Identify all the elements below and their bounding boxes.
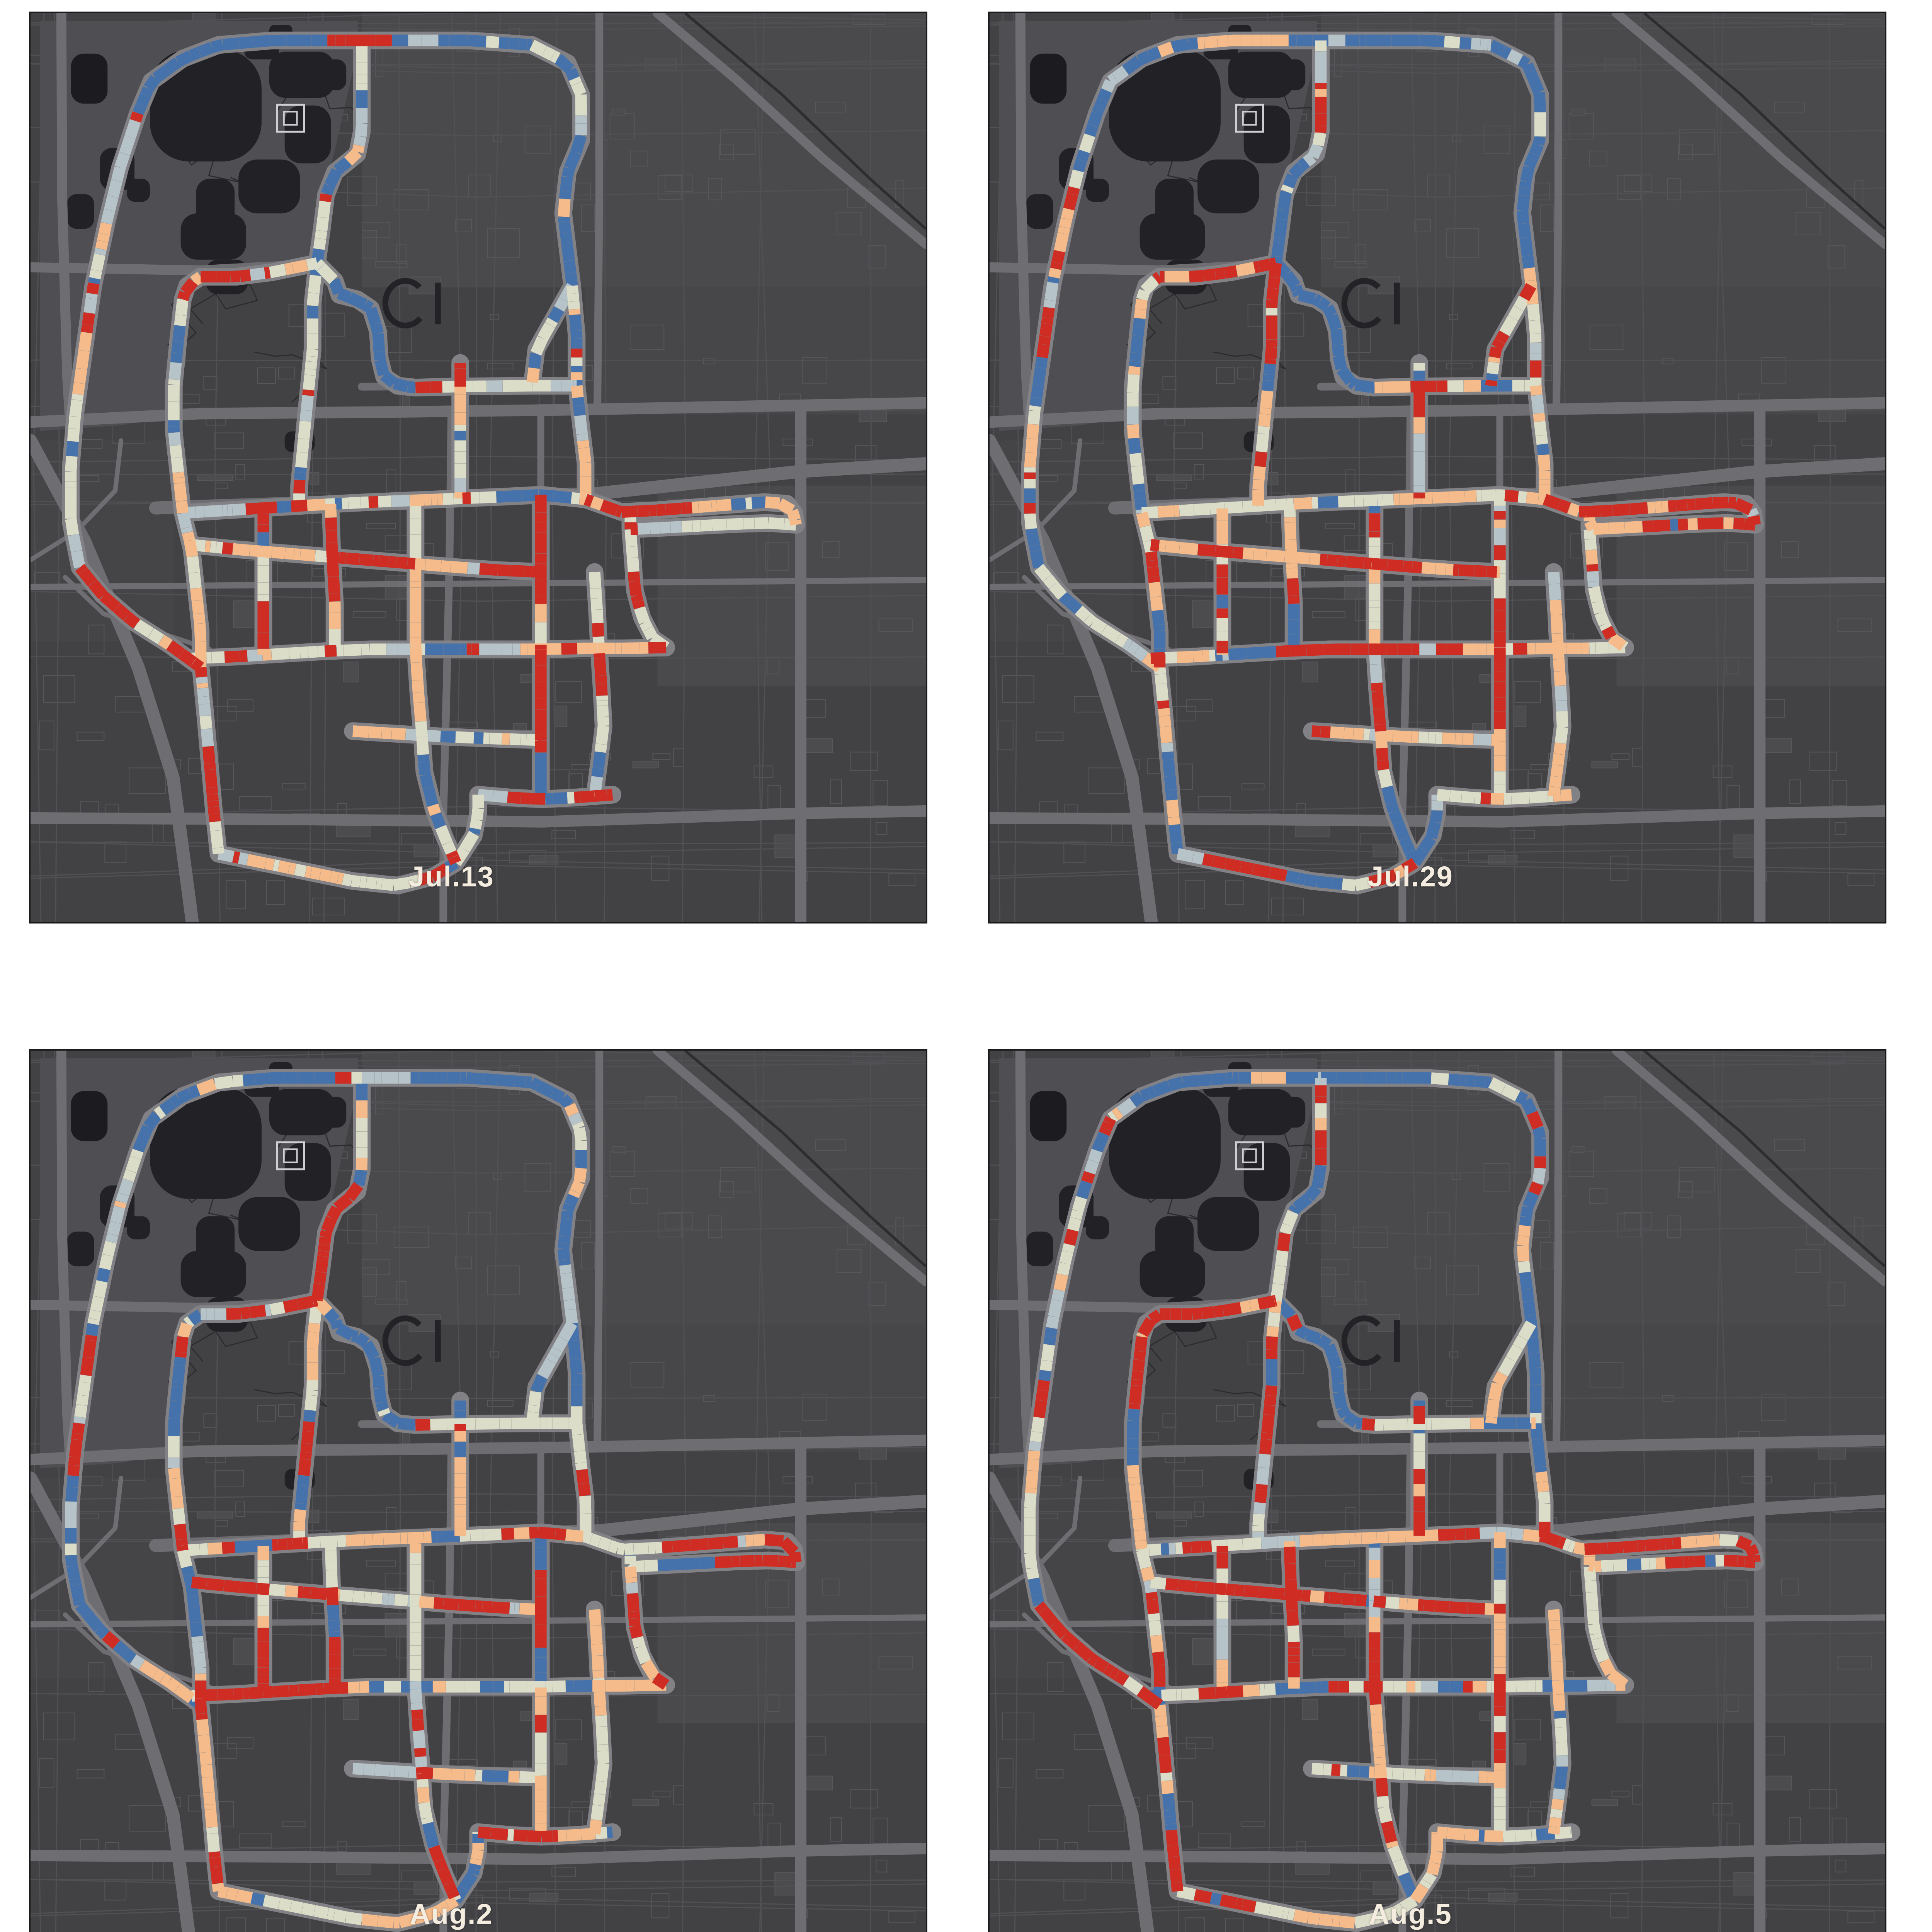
panel-date-label: Jul.29	[1367, 860, 1453, 893]
figure-page: { "figure": { "title": "Mobile noise mea…	[0, 0, 1932, 1932]
map-canvas	[990, 1051, 1885, 1932]
panel-date-label: Jul.13	[408, 860, 494, 893]
panel-date-label: Aug.2	[410, 1898, 493, 1930]
map-canvas	[31, 13, 926, 922]
map-canvas	[990, 13, 1885, 922]
map-panel-aug2: Aug.2	[29, 1049, 927, 1932]
map-panel-jul29: Jul.29	[988, 12, 1886, 923]
map-panel-jul13: Jul.13	[29, 12, 927, 923]
map-canvas	[31, 1051, 926, 1932]
panel-date-label: Aug.5	[1369, 1898, 1452, 1930]
map-panel-aug5: Aug.5	[988, 1049, 1886, 1932]
